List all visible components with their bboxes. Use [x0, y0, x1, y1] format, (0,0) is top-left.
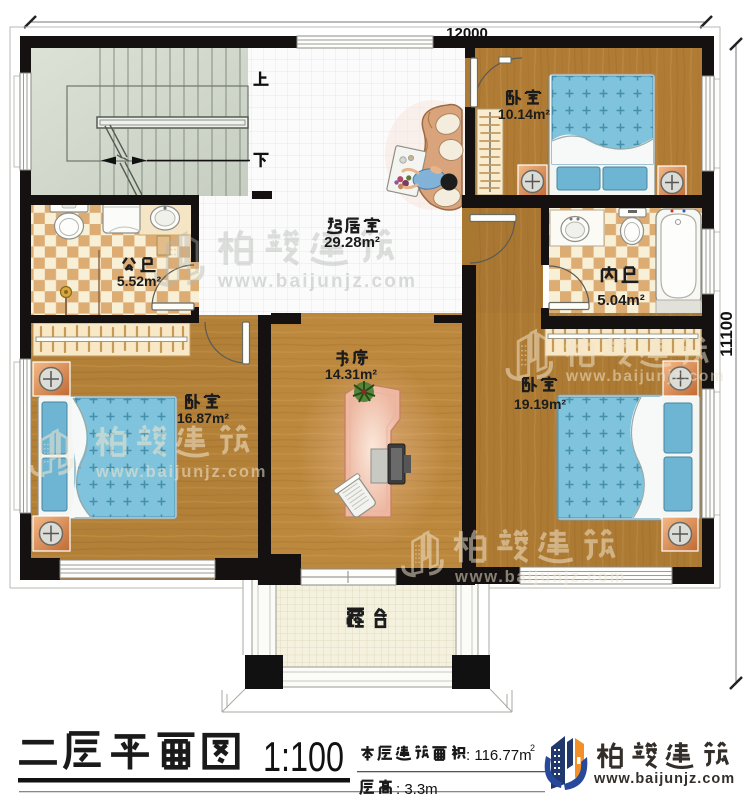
svg-text:5.52m²: 5.52m²	[117, 273, 162, 289]
svg-text:12000: 12000	[446, 25, 488, 42]
svg-text:: 3.3m: : 3.3m	[396, 781, 438, 798]
svg-text:2: 2	[530, 743, 535, 753]
svg-text:29.28m²: 29.28m²	[324, 234, 380, 251]
svg-text:www.baijunjz.com: www.baijunjz.com	[565, 368, 725, 385]
svg-text:10.14m²: 10.14m²	[498, 106, 550, 122]
svg-text:5.04m²: 5.04m²	[597, 292, 645, 309]
svg-text:1:100: 1:100	[263, 733, 344, 780]
svg-text:www.baijunjz.com: www.baijunjz.com	[593, 771, 735, 787]
svg-text:: 116.77m: : 116.77m	[466, 747, 532, 764]
svg-text:19.19m²: 19.19m²	[514, 396, 566, 412]
svg-text:www.baijunjz.com: www.baijunjz.com	[454, 568, 626, 586]
svg-text:www.baijunjz.com: www.baijunjz.com	[95, 463, 267, 481]
svg-text:www.baijunjz.com: www.baijunjz.com	[217, 271, 417, 292]
svg-text:16.87m²: 16.87m²	[177, 410, 229, 426]
svg-text:14.31m²: 14.31m²	[325, 366, 377, 382]
